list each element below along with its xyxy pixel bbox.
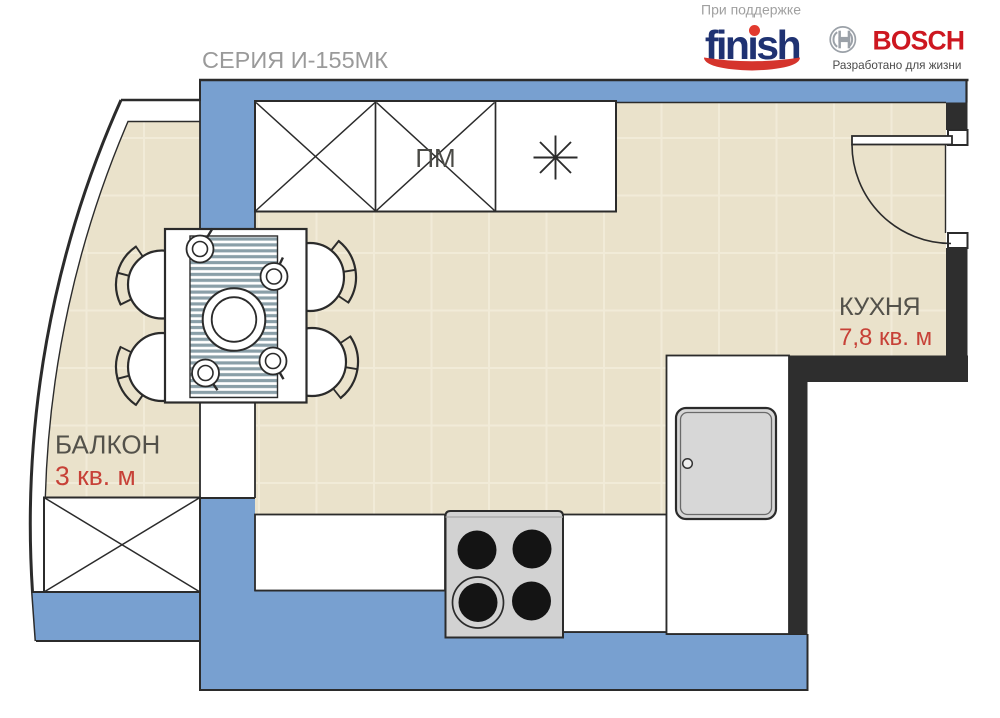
svg-text:КУХНЯ: КУХНЯ [839,293,920,321]
svg-text:БАЛКОН: БАЛКОН [55,430,160,460]
svg-text:При поддержке: При поддержке [701,2,801,18]
svg-text:СЕРИЯ И-155МК: СЕРИЯ И-155МК [202,47,388,73]
svg-text:BOSCH: BOSCH [873,26,965,56]
svg-text:ПМ: ПМ [415,143,455,173]
svg-text:3 кв. м: 3 кв. м [55,461,136,491]
svg-text:7,8 кв. м: 7,8 кв. м [839,324,932,351]
svg-text:Разработано для жизни: Разработано для жизни [833,59,962,72]
